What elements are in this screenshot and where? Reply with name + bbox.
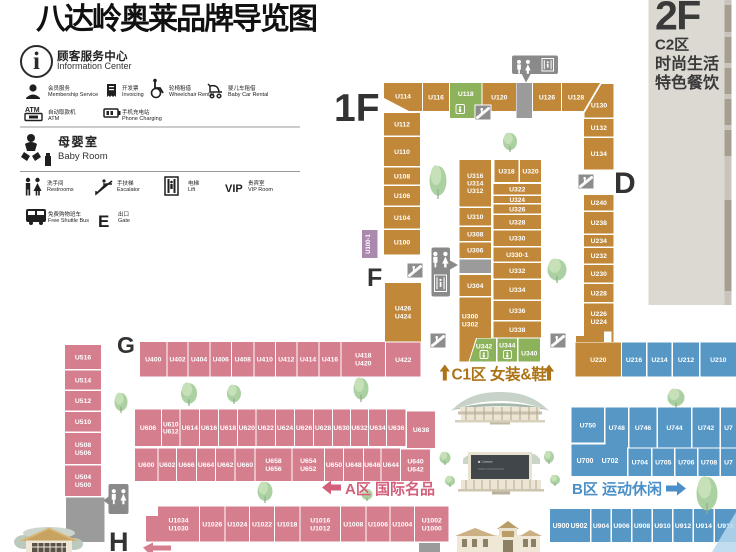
svg-text:U226: U226 (591, 311, 607, 318)
svg-text:U224: U224 (591, 319, 607, 326)
svg-text:U516: U516 (75, 354, 91, 361)
svg-text:U618: U618 (220, 425, 236, 432)
svg-text:H: H (109, 527, 129, 552)
svg-text:U106: U106 (394, 193, 410, 200)
svg-text:U606: U606 (140, 425, 156, 432)
svg-text:U658: U658 (265, 458, 281, 465)
svg-text:U622: U622 (258, 425, 274, 432)
svg-text:U230: U230 (591, 271, 607, 278)
svg-text:U314: U314 (467, 181, 483, 188)
svg-text:U600: U600 (138, 462, 154, 469)
svg-text:D: D (614, 167, 636, 200)
svg-text:U402: U402 (169, 357, 185, 364)
svg-text:U7: U7 (724, 460, 733, 467)
svg-text:U114: U114 (395, 93, 411, 100)
svg-text:U332: U332 (509, 268, 525, 275)
svg-text:U320: U320 (522, 168, 538, 175)
svg-text:U1034: U1034 (168, 517, 188, 524)
svg-text:U238: U238 (591, 220, 607, 227)
svg-text:C1区 女装&鞋: C1区 女装&鞋 (452, 365, 548, 384)
svg-text:U700: U700 (577, 458, 594, 465)
svg-text:U914: U914 (696, 523, 712, 530)
svg-text:U912: U912 (675, 523, 691, 530)
svg-text:E: E (98, 212, 109, 231)
svg-text:U900: U900 (553, 523, 570, 530)
svg-text:U420: U420 (355, 361, 371, 368)
svg-text:U704: U704 (632, 460, 648, 467)
svg-text:G: G (117, 332, 135, 358)
svg-text:U312: U312 (467, 188, 483, 195)
svg-text:时尚生活: 时尚生活 (655, 54, 719, 73)
svg-text:U666: U666 (178, 462, 194, 469)
svg-text:U132: U132 (591, 125, 607, 132)
svg-text:U508: U508 (75, 442, 91, 449)
svg-text:U750: U750 (580, 422, 596, 429)
svg-text:U652: U652 (300, 466, 316, 473)
svg-text:U504: U504 (75, 474, 91, 481)
svg-text:U7: U7 (724, 425, 733, 432)
svg-text:U416: U416 (322, 357, 338, 364)
svg-text:特色餐饮: 特色餐饮 (655, 73, 720, 92)
svg-text:母婴室: 母婴室 (58, 134, 99, 149)
svg-text:U414: U414 (300, 357, 316, 364)
svg-text:U126: U126 (539, 94, 555, 101)
svg-text:U410: U410 (257, 357, 273, 364)
svg-text:U1018: U1018 (277, 521, 297, 528)
svg-text:U660: U660 (237, 462, 253, 469)
svg-text:U1030: U1030 (168, 525, 188, 532)
svg-text:U308: U308 (467, 231, 483, 238)
svg-text:U748: U748 (609, 425, 625, 432)
svg-text:U234: U234 (591, 238, 607, 245)
svg-text:U422: U422 (395, 357, 411, 364)
svg-text:U212: U212 (678, 357, 694, 364)
svg-text:U220: U220 (590, 357, 606, 364)
svg-text:U424: U424 (395, 314, 411, 321)
svg-text:U310: U310 (467, 214, 483, 221)
svg-text:U404: U404 (191, 357, 207, 364)
svg-text:U910: U910 (654, 523, 670, 530)
svg-text:U664: U664 (198, 462, 214, 469)
svg-text:U506: U506 (75, 450, 91, 457)
svg-text:U662: U662 (217, 462, 233, 469)
svg-text:U120: U120 (491, 94, 507, 101)
svg-text:═══ ═══════: ═══ ═══════ (477, 467, 504, 471)
svg-text:U330: U330 (509, 236, 525, 243)
svg-text:U742: U742 (698, 425, 714, 432)
svg-text:U1002: U1002 (422, 517, 442, 524)
svg-text:U1024: U1024 (227, 521, 247, 528)
svg-text:U510: U510 (75, 419, 91, 426)
svg-text:U624: U624 (277, 425, 293, 432)
svg-text:■ □═══: ■ □═══ (478, 459, 493, 464)
svg-text:U324: U324 (509, 197, 525, 204)
svg-text:U708: U708 (701, 460, 717, 467)
svg-text:Baby Room: Baby Room (58, 151, 108, 162)
svg-text:U306: U306 (467, 248, 483, 255)
svg-text:U640: U640 (407, 459, 423, 466)
svg-text:U612: U612 (163, 429, 179, 436)
svg-text:U322: U322 (509, 187, 525, 194)
svg-text:U116: U116 (428, 94, 444, 101)
svg-text:U328: U328 (509, 219, 525, 226)
svg-text:U128: U128 (568, 94, 584, 101)
svg-text:C2区: C2区 (655, 37, 689, 54)
svg-text:U706: U706 (678, 460, 694, 467)
svg-text:U1006: U1006 (368, 521, 388, 528)
svg-text:U514: U514 (75, 377, 91, 384)
svg-text:U705: U705 (655, 460, 671, 467)
svg-text:U512: U512 (75, 398, 91, 405)
svg-text:U228: U228 (591, 290, 607, 297)
svg-text:U1000: U1000 (422, 525, 442, 532)
svg-text:U338: U338 (509, 327, 525, 334)
svg-text:U110: U110 (394, 149, 410, 156)
svg-text:U406: U406 (213, 357, 229, 364)
svg-text:VIP: VIP (225, 183, 243, 195)
svg-text:U210: U210 (710, 357, 726, 364)
svg-text:U340: U340 (521, 350, 537, 357)
svg-text:U744: U744 (666, 425, 682, 432)
svg-text:U334: U334 (509, 287, 525, 294)
svg-text:U300: U300 (462, 313, 478, 320)
svg-text:U656: U656 (265, 466, 281, 473)
svg-text:U232: U232 (591, 253, 607, 260)
svg-text:U108: U108 (394, 173, 410, 180)
svg-text:U134: U134 (591, 151, 607, 158)
svg-text:U634: U634 (369, 425, 385, 432)
svg-text:U904: U904 (593, 523, 609, 530)
svg-text:U616: U616 (201, 425, 217, 432)
svg-text:U646: U646 (364, 462, 380, 469)
svg-text:U216: U216 (626, 357, 642, 364)
svg-text:U240: U240 (591, 200, 607, 207)
svg-text:U650: U650 (326, 462, 342, 469)
svg-text:U418: U418 (355, 353, 371, 360)
svg-text:U630: U630 (333, 425, 349, 432)
svg-text:U644: U644 (383, 462, 399, 469)
svg-text:U636: U636 (388, 425, 404, 432)
svg-text:U1022: U1022 (252, 521, 272, 528)
svg-text:U642: U642 (407, 467, 423, 474)
svg-text:U908: U908 (634, 523, 650, 530)
svg-text:U1026: U1026 (202, 521, 222, 528)
svg-text:U1016: U1016 (310, 517, 330, 524)
svg-text:B区 运动休闲: B区 运动休闲 (572, 480, 662, 498)
svg-text:U648: U648 (345, 462, 361, 469)
svg-text:U408: U408 (235, 357, 251, 364)
svg-text:U118: U118 (458, 91, 474, 98)
svg-text:U1004: U1004 (392, 521, 412, 528)
svg-text:U1012: U1012 (310, 525, 330, 532)
svg-text:U746: U746 (635, 425, 651, 432)
svg-text:U702: U702 (602, 458, 619, 465)
svg-text:U100-1: U100-1 (366, 234, 372, 254)
svg-text:U638: U638 (413, 427, 429, 434)
svg-text:U342: U342 (476, 343, 492, 350)
svg-text:F: F (367, 264, 382, 292)
svg-text:U500: U500 (75, 482, 91, 489)
svg-text:U100: U100 (394, 240, 410, 247)
svg-text:U318: U318 (498, 168, 514, 175)
svg-text:U1008: U1008 (343, 521, 363, 528)
svg-text:U344: U344 (499, 342, 515, 349)
svg-text:U628: U628 (315, 425, 331, 432)
svg-text:U326: U326 (509, 206, 525, 213)
svg-text:U330-1: U330-1 (506, 252, 529, 259)
svg-text:U130: U130 (591, 102, 607, 109)
svg-text:U104: U104 (394, 215, 410, 222)
svg-text:U626: U626 (296, 425, 312, 432)
svg-text:U426: U426 (395, 306, 411, 313)
svg-text:U302: U302 (462, 321, 478, 328)
svg-text:U620: U620 (239, 425, 255, 432)
svg-text:2F: 2F (655, 0, 700, 39)
svg-text:U400: U400 (145, 357, 161, 364)
svg-text:U610: U610 (163, 422, 179, 429)
svg-text:U902: U902 (571, 523, 588, 530)
svg-text:U214: U214 (651, 357, 667, 364)
svg-text:U632: U632 (351, 425, 367, 432)
svg-text:U316: U316 (467, 173, 483, 180)
svg-text:U336: U336 (509, 308, 525, 315)
svg-text:U304: U304 (467, 283, 483, 290)
svg-text:U112: U112 (394, 122, 410, 129)
svg-text:U614: U614 (182, 425, 198, 432)
svg-text:U602: U602 (159, 462, 175, 469)
svg-text:U906: U906 (613, 523, 629, 530)
svg-text:A区 国际名品: A区 国际名品 (345, 480, 435, 498)
svg-text:1F: 1F (334, 87, 380, 130)
svg-text:U412: U412 (278, 357, 294, 364)
svg-text:U654: U654 (300, 458, 316, 465)
